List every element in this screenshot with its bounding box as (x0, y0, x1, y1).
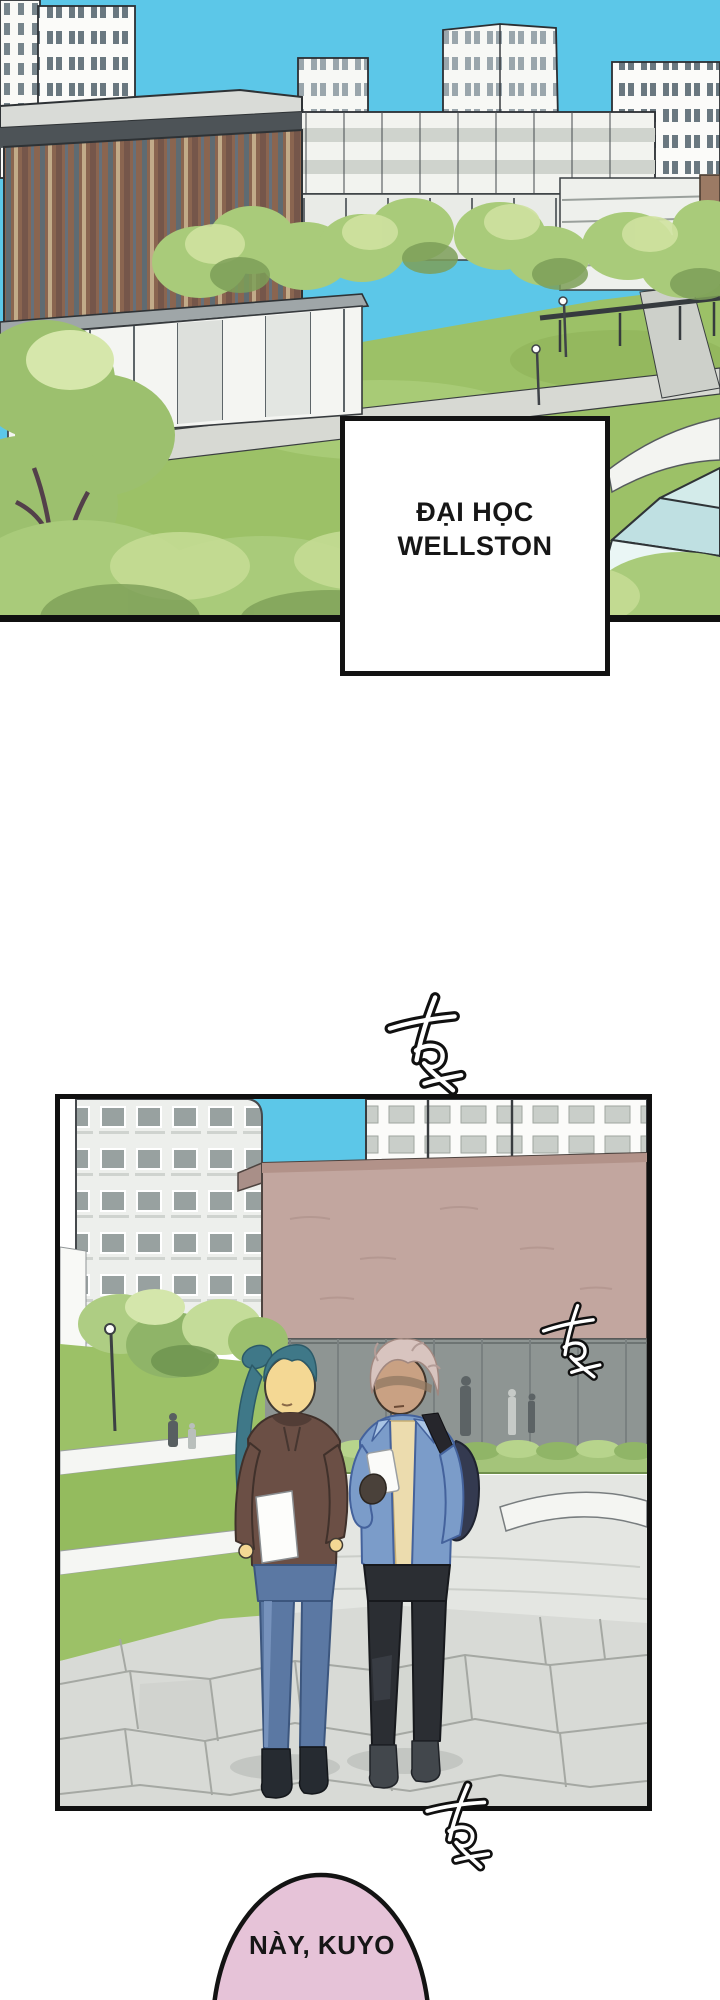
pants (364, 1565, 450, 1601)
caption-line-2: WELLSTON (398, 529, 553, 563)
speech-text: NÀY, KUYO (222, 1930, 422, 1961)
white-building (366, 1099, 647, 1161)
boot (262, 1749, 293, 1798)
shoe (370, 1745, 399, 1788)
jeans (254, 1565, 336, 1601)
caption-line-1: ĐẠI HỌC (416, 495, 534, 529)
walking-scene (60, 1099, 647, 1806)
caption-box: ĐẠI HỌC WELLSTON (340, 416, 610, 676)
distant-figure (168, 1413, 178, 1447)
boot (300, 1747, 329, 1794)
walking-panel (55, 1094, 652, 1811)
sfx-ta-1 (371, 988, 471, 1099)
sfx-ta-3 (409, 1775, 499, 1876)
sfx-ta-2 (531, 1300, 605, 1384)
white-folder (256, 1491, 298, 1563)
comic-page: ĐẠI HỌC WELLSTON (0, 0, 720, 2000)
lawn-terraces (60, 1344, 265, 1661)
